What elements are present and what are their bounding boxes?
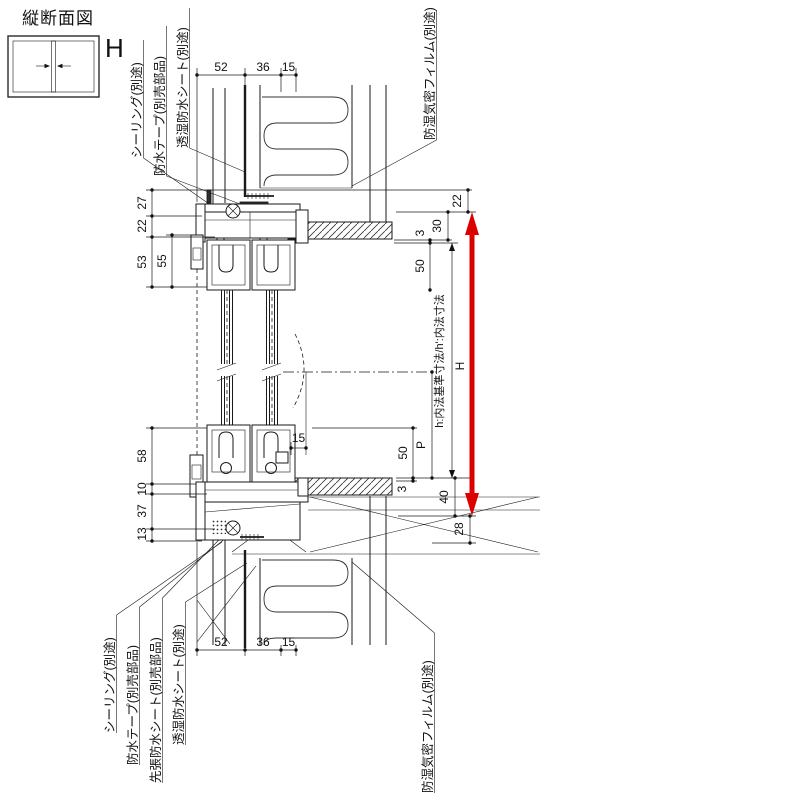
page-title: 縦断面図: [22, 9, 94, 28]
dim-value: 30: [430, 219, 444, 233]
callout-waterproof-tape-bottom: 防水テープ(別売部品): [125, 645, 140, 765]
vertical-section-drawing: 縦断面図 H シーリング(別途) 防水テープ(別売部品) 透湿防水シート(別途)…: [0, 0, 800, 800]
wall-section-top: [213, 85, 386, 222]
callout-prelaid-sheet-bottom: 先張防水シート(別売部品): [148, 637, 163, 783]
dim-value: 15: [292, 431, 306, 445]
insulation-batt-top: [262, 97, 348, 186]
frame-sill: [196, 478, 308, 540]
callout-bottom-right: 防湿気密フィルム(別途): [352, 562, 435, 793]
drawing-page: 縦断面図 H シーリング(別途) 防水テープ(別売部品) 透湿防水シート(別途)…: [0, 0, 800, 800]
dim-value: 40: [437, 490, 451, 504]
dim-value: 10: [135, 482, 149, 496]
dim-value: 15: [282, 635, 296, 649]
inner-height-note: h:内法基準寸法/h':内法寸法: [432, 294, 446, 428]
dim-value: 58: [135, 449, 149, 463]
height-arrow-head-top: [465, 212, 479, 235]
callout-sealing-top: シーリング(別途): [129, 62, 144, 158]
sash-top-rails: [207, 240, 295, 290]
dim-value: 22: [450, 194, 464, 208]
insulation-batt-bottom: [262, 560, 348, 645]
sliding-arrows-icon: [36, 64, 71, 69]
dim-value: 15: [282, 60, 296, 74]
dim-inner-height: h:内法基準寸法/h':内法寸法: [432, 243, 455, 478]
callout-vapor-film-top: 防湿気密フィルム(別途): [422, 7, 437, 140]
callout-top-right: 防湿気密フィルム(別途): [352, 7, 437, 186]
sealant-bottom: [212, 520, 226, 534]
sash-bottom-rails: [207, 425, 295, 484]
height-arrow-label: H: [453, 362, 467, 371]
dim-value: 28: [452, 522, 466, 536]
callout-vapor-film-bottom: 防湿気密フィルム(別途): [420, 660, 435, 793]
dim-value: 50: [396, 446, 410, 460]
glass-exterior-sash: [217, 290, 236, 436]
dim-value: 13: [135, 527, 149, 541]
dim-value: 3: [395, 485, 409, 492]
dim-value: 36: [256, 60, 270, 74]
dim-value: 52: [214, 635, 228, 649]
icon-height-label: H: [105, 33, 124, 63]
callout-breathable-sheet-top: 透湿防水シート(別途): [175, 27, 190, 148]
dim-value: 53: [135, 255, 149, 269]
callout-breathable-sheet-bottom: 透湿防水シート(別途): [171, 624, 186, 745]
glass-interior-sash: [262, 290, 281, 436]
dim-value: 3: [413, 229, 427, 236]
callout-waterproof-tape-top: 防水テープ(別売部品): [152, 56, 167, 176]
glazing-units: [217, 290, 281, 436]
dim-value: 50: [413, 259, 427, 273]
dim-chain-top: 52 36 15: [195, 60, 297, 202]
dim-value: 52: [214, 60, 228, 74]
insect-screen: [190, 235, 203, 497]
callout-sealing-bottom: シーリング(別途): [102, 637, 117, 733]
dim-chain-bottom: 52 36 15: [195, 542, 297, 656]
dim-value: 37: [135, 504, 149, 518]
callouts-top-left: シーリング(別途) 防水テープ(別売部品) 透湿防水シート(別途): [129, 8, 245, 213]
window-elevation-icon: H: [8, 33, 124, 97]
dim-value: 55: [155, 254, 169, 268]
height-arrow-head-bottom: [465, 493, 479, 516]
dim-value: 22: [135, 219, 149, 233]
dim-value: 27: [135, 196, 149, 210]
dim-value: 36: [256, 635, 270, 649]
dim-value-p: P: [414, 441, 428, 449]
height-arrow-H: H: [453, 212, 479, 516]
